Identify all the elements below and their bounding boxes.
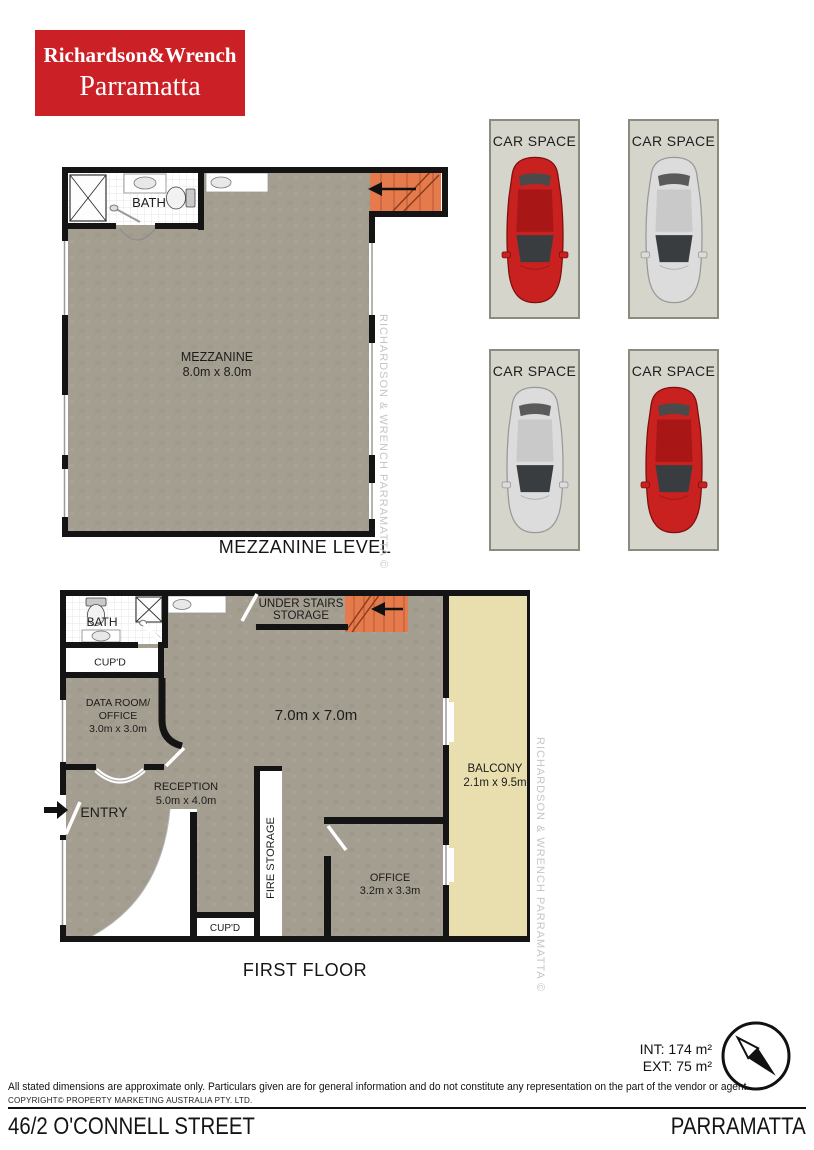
car-space-4: CAR SPACE: [628, 349, 719, 551]
watermark: RICHARDSON & WRENCH PARRAMATTA ©: [534, 737, 546, 992]
car-space-3: CAR SPACE: [489, 349, 580, 551]
mezzanine-bathroom: BATH: [68, 173, 200, 225]
cupboard-bottom-label: CUP'D: [210, 923, 240, 934]
under-stairs-label-2: STORAGE: [273, 610, 329, 622]
car-top-view-red-icon: [636, 384, 712, 536]
cupboard-top-label: CUP'D: [94, 657, 126, 669]
mezzanine-room-label: MEZZANINE: [181, 350, 253, 364]
address-street: 46/2 O'CONNELL STREET: [8, 1113, 255, 1141]
data-room-label-2: OFFICE: [99, 710, 138, 722]
car-space-label: CAR SPACE: [630, 133, 717, 149]
balcony-dims: 2.1m x 9.5m: [463, 777, 526, 789]
address-suburb: PARRAMATTA: [671, 1113, 806, 1141]
agency-branch: Parramatta: [35, 71, 245, 103]
data-room-label-1: DATA ROOM/: [86, 697, 150, 709]
internal-area: INT: 174 m²: [640, 1041, 712, 1058]
agency-name: Richardson&Wrench: [35, 43, 245, 68]
balcony-label: BALCONY: [468, 763, 523, 775]
disclaimer-text: All stated dimensions are approximate on…: [8, 1081, 749, 1093]
first-floor-caption: FIRST FLOOR: [110, 960, 500, 981]
car-space-label: CAR SPACE: [491, 363, 578, 379]
entry-label: ENTRY: [80, 804, 128, 820]
main-room-dims: 7.0m x 7.0m: [275, 707, 358, 724]
reception-label: RECEPTION: [154, 781, 218, 793]
mezzanine-bath-label: BATH: [132, 195, 166, 210]
mezzanine-caption: MEZZANINE LEVEL: [110, 537, 500, 558]
area-summary: INT: 174 m² EXT: 75 m²: [640, 1041, 712, 1075]
watermark: RICHARDSON & WRENCH PARRAMATTA ©: [377, 314, 389, 569]
car-top-view-silver-icon: [497, 384, 573, 536]
reception-dims: 5.0m x 4.0m: [156, 795, 217, 807]
first-floor-stairs: [345, 590, 408, 632]
first-floor-bath-label: BATH: [86, 615, 117, 629]
floorplan-flyer: Richardson&Wrench Parramatta: [0, 0, 814, 1150]
fire-storage-label: FIRE STORAGE: [265, 817, 277, 899]
vanity-icon: [206, 173, 268, 192]
first-floor-bathroom: BATH: [66, 596, 164, 644]
car-space-label: CAR SPACE: [491, 133, 578, 149]
external-area: EXT: 75 m²: [640, 1058, 712, 1075]
car-top-view-silver-icon: [636, 154, 712, 306]
mezzanine-floor-plan: BATH MEZZANINE: [60, 165, 450, 545]
under-stairs-label-1: UNDER STAIRS: [259, 598, 344, 610]
mezzanine-stairs: [368, 167, 441, 212]
footer-divider: [8, 1107, 806, 1109]
copyright-text: COPYRIGHT© PROPERTY MARKETING AUSTRALIA …: [8, 1095, 252, 1105]
car-space-label: CAR SPACE: [630, 363, 717, 379]
office-label: OFFICE: [370, 872, 410, 884]
car-space-2: CAR SPACE: [628, 119, 719, 319]
vanity-icon: [168, 596, 226, 613]
mezzanine-room-dims: 8.0m x 8.0m: [183, 365, 252, 379]
car-top-view-red-icon: [497, 154, 573, 306]
toilet-icon: [167, 187, 196, 209]
first-floor-plan: BATH: [43, 588, 538, 958]
office-dims: 3.2m x 3.3m: [360, 885, 421, 897]
car-space-1: CAR SPACE: [489, 119, 580, 319]
data-room-dims: 3.0m x 3.0m: [89, 723, 147, 735]
agency-logo: Richardson&Wrench Parramatta: [35, 30, 245, 116]
